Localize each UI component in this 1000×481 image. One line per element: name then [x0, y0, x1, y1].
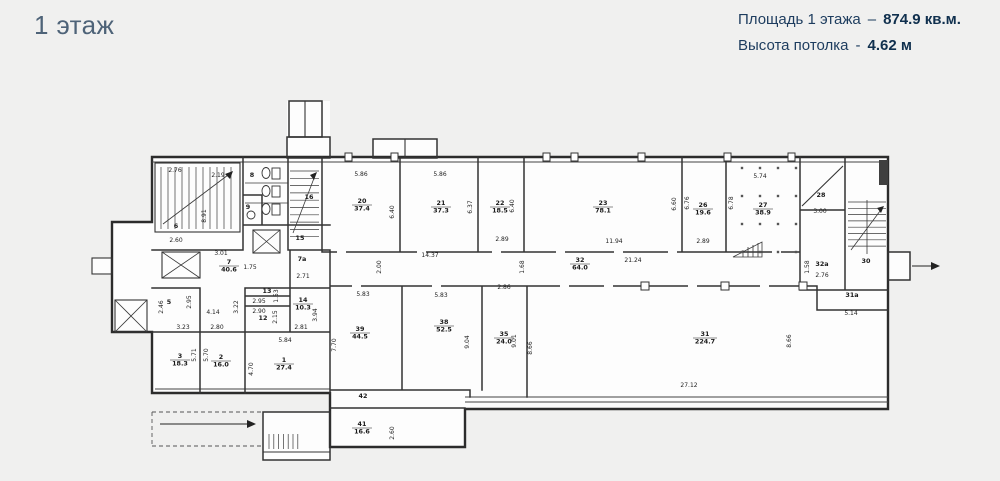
dim-6.40: 6.40 — [509, 199, 516, 213]
exterior-ramp — [152, 412, 263, 446]
room-7а-label: 7а — [298, 255, 307, 263]
dim-2.89: 2.89 — [495, 236, 509, 243]
dim-2.60: 2.60 — [169, 237, 183, 244]
room-5-label: 5 — [167, 298, 171, 306]
dim-2.80: 2.80 — [210, 324, 224, 331]
room-8-label: 8 — [250, 171, 255, 179]
stair-30-treads — [848, 200, 886, 254]
room-6-label: 6 — [174, 222, 179, 230]
page: 1 этаж Площадь 1 этажа–874.9 кв.м. Высот… — [0, 0, 1000, 481]
dim-11.94: 11.94 — [605, 238, 622, 245]
dim-4.70: 4.70 — [248, 362, 255, 376]
dim-9.04: 9.04 — [464, 335, 471, 349]
dim-5.84: 5.84 — [278, 337, 292, 344]
dim-2.76: 2.76 — [168, 167, 182, 174]
dim-2.00: 2.00 — [376, 260, 383, 274]
dim-14.37: 14.37 — [421, 252, 438, 259]
dim-2.90: 2.90 — [252, 308, 266, 315]
shaft-block — [879, 160, 888, 185]
dim-5.83: 5.83 — [434, 292, 448, 299]
dim-6.37: 6.37 — [467, 200, 474, 214]
dim-5.71: 5.71 — [191, 348, 198, 362]
room-13-label: 13 — [263, 287, 272, 295]
room-9-label: 9 — [246, 203, 251, 211]
dim-2.89: 2.89 — [696, 238, 710, 245]
floor-plan: 127.4216.0318.356740.67а8912131410.31516… — [0, 0, 1000, 481]
room-28-label: 28 — [817, 191, 826, 199]
dim-2.71: 2.71 — [296, 273, 310, 280]
room-15-label: 15 — [296, 234, 305, 242]
dim-5.83: 5.83 — [356, 291, 370, 298]
dim-7.70: 7.70 — [331, 338, 338, 352]
dim-8.66: 8.66 — [527, 341, 534, 355]
room-30-label: 30 — [862, 257, 871, 265]
dim-8.66: 8.66 — [786, 334, 793, 348]
dim-27.12: 27.12 — [680, 382, 697, 389]
dim-2.46: 2.46 — [158, 300, 165, 314]
dim-8.91: 8.91 — [201, 209, 208, 223]
dim-3.23: 3.23 — [176, 324, 190, 331]
dim-1.53: 1.53 — [273, 289, 280, 303]
dim-6.40: 6.40 — [389, 205, 396, 219]
dim-3.94: 3.94 — [312, 308, 319, 322]
room-31а-label: 31а — [845, 291, 858, 299]
dim-6.60: 6.60 — [671, 197, 678, 211]
building-fill — [92, 101, 910, 460]
room-12-label: 12 — [259, 314, 268, 322]
dim-9.01: 9.01 — [511, 334, 518, 348]
dim-2.19: 2.19 — [211, 172, 225, 179]
dim-5.70: 5.70 — [203, 348, 210, 362]
dim-5.86: 5.86 — [433, 171, 447, 178]
dim-2.15: 2.15 — [272, 310, 279, 324]
room-16-label: 16 — [305, 193, 314, 201]
dim-6.76: 6.76 — [684, 196, 691, 210]
dim-5.14: 5.14 — [844, 310, 858, 317]
dim-1.75: 1.75 — [243, 264, 257, 271]
dim-3.01: 3.01 — [214, 250, 228, 257]
dim-2.60: 2.60 — [389, 426, 396, 440]
dim-2.81: 2.81 — [294, 324, 308, 331]
room-32а-label: 32а — [815, 260, 828, 268]
dim-1.58: 1.58 — [804, 260, 811, 274]
room-42-label: 42 — [359, 392, 368, 400]
dim-6.78: 6.78 — [728, 196, 735, 210]
dim-5.86: 5.86 — [354, 171, 368, 178]
dim-2.86: 2.86 — [497, 284, 511, 291]
dim-2.95: 2.95 — [252, 298, 266, 305]
dim-3.00: 3.00 — [813, 208, 827, 215]
dim-1.68: 1.68 — [519, 260, 526, 274]
dim-4.14: 4.14 — [206, 309, 220, 316]
dim-5.74: 5.74 — [753, 173, 767, 180]
dim-21.24: 21.24 — [624, 257, 641, 264]
dim-2.76: 2.76 — [815, 272, 829, 279]
dim-2.95: 2.95 — [186, 295, 193, 309]
basin — [247, 211, 255, 219]
dim-3.22: 3.22 — [233, 300, 240, 314]
